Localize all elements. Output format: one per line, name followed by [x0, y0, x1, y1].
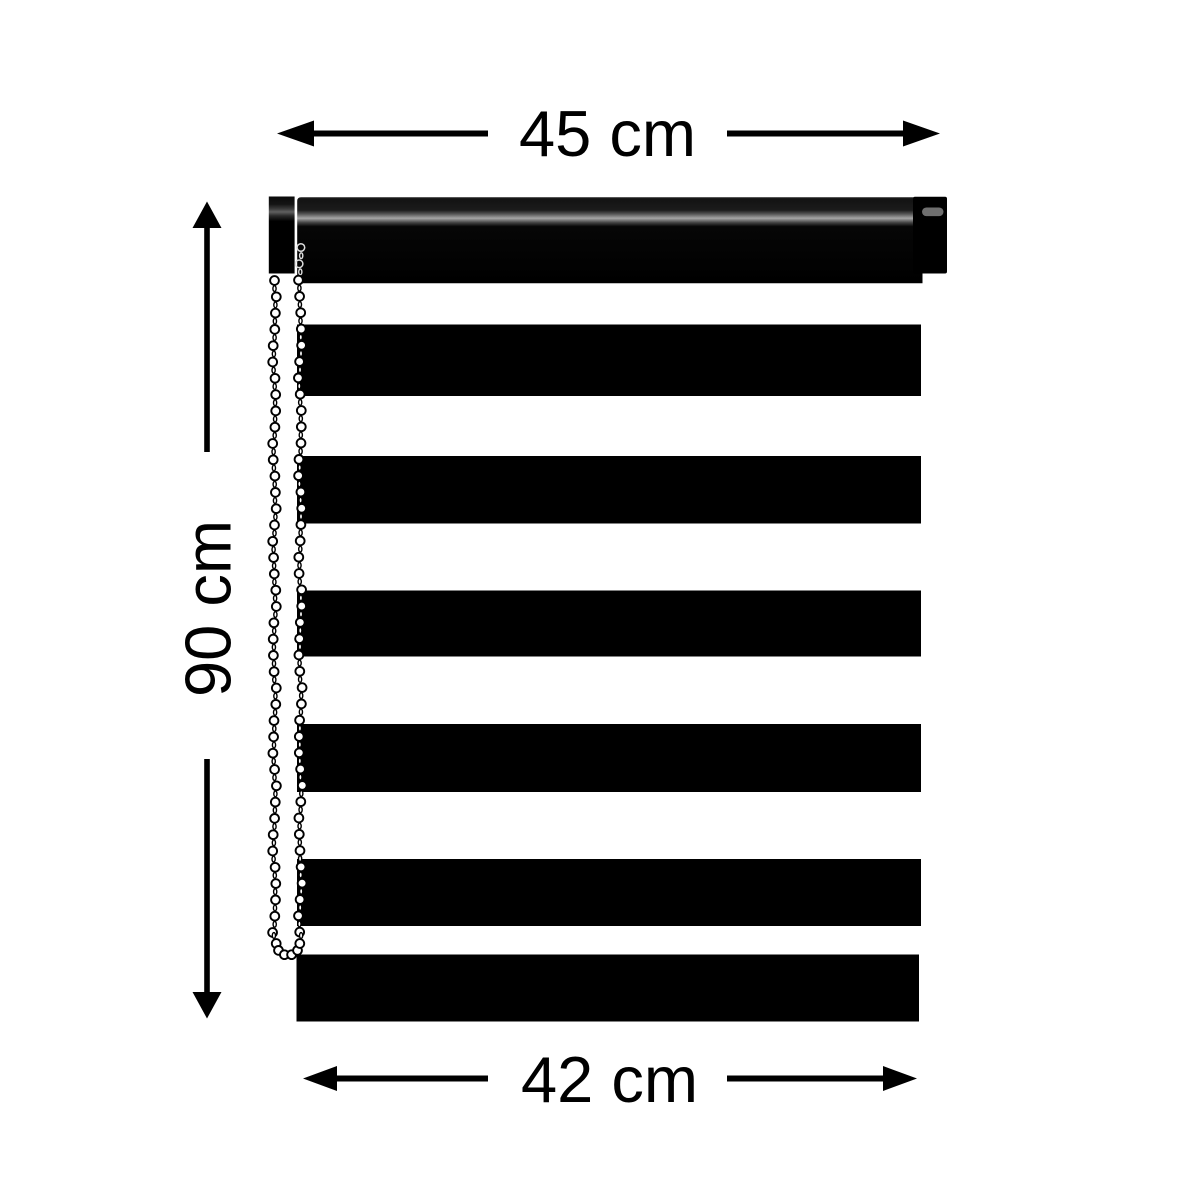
svg-text:42 cm: 42 cm	[521, 1043, 698, 1116]
svg-text:90 cm: 90 cm	[172, 520, 245, 697]
svg-text:45 cm: 45 cm	[519, 97, 696, 170]
